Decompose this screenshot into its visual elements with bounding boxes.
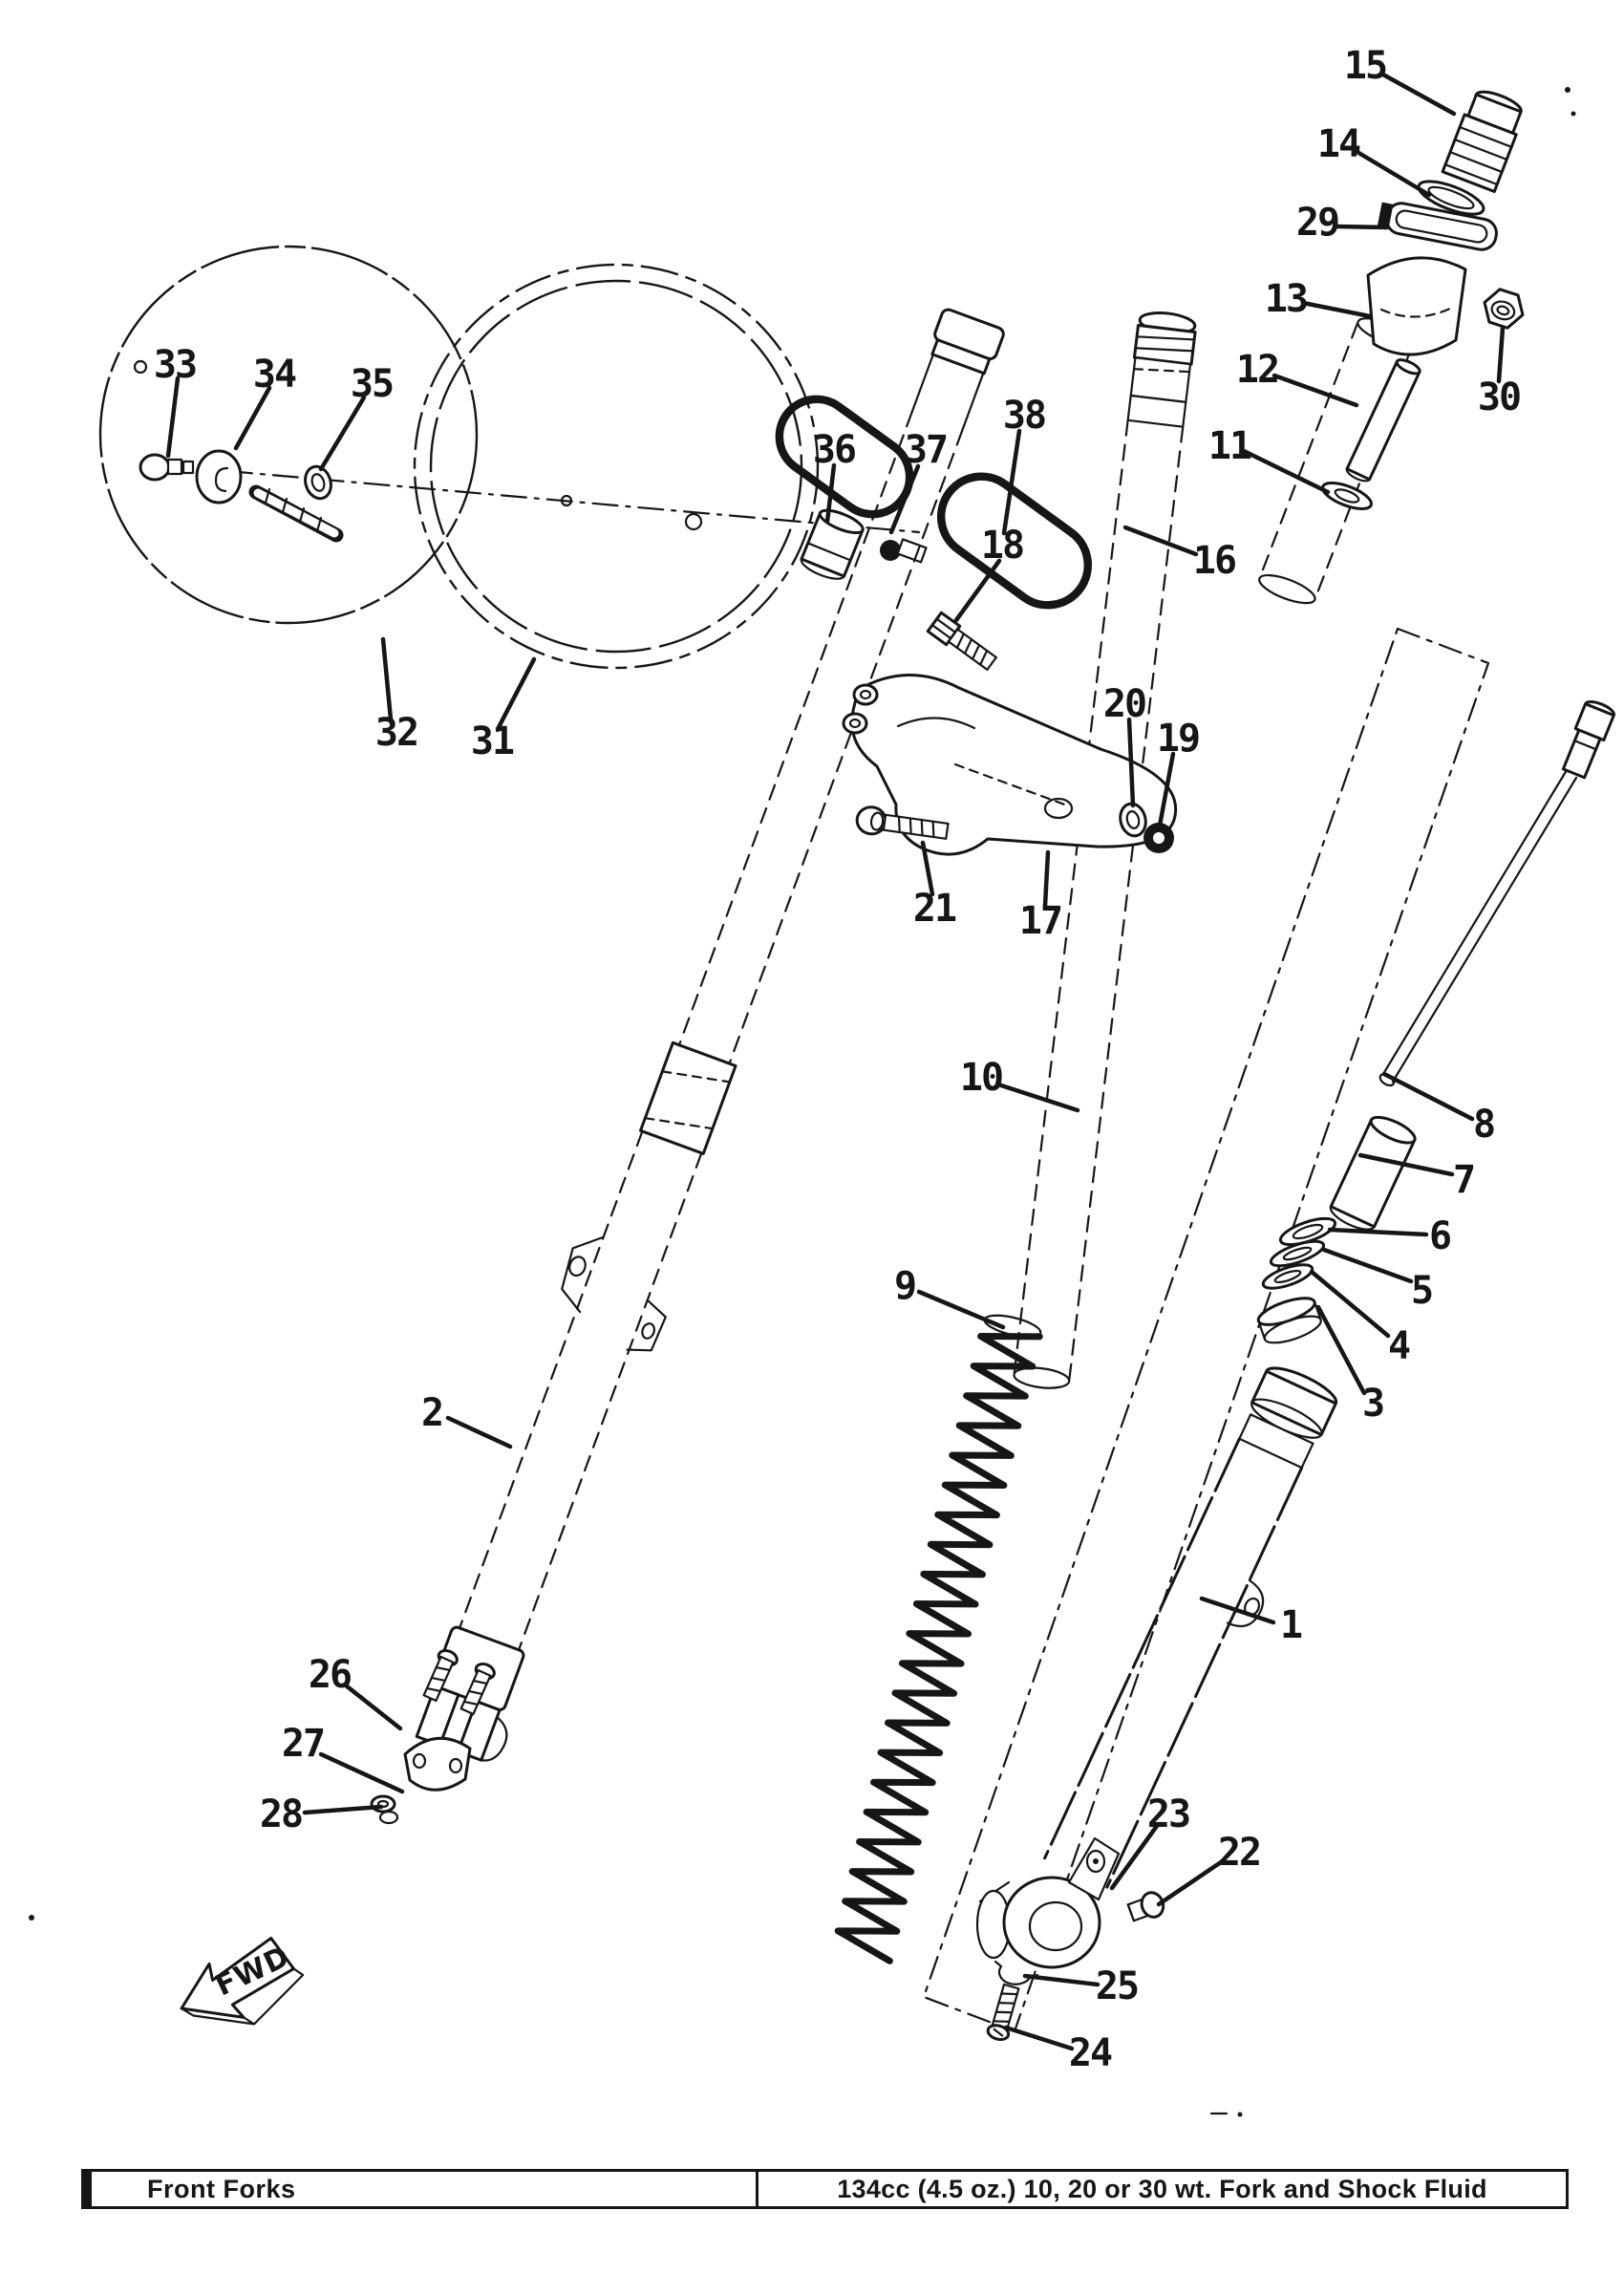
footer-spec-text: 134cc (4.5 oz.) 10, 20 or 30 wt. Fork an…	[837, 2175, 1487, 2204]
callout-21: 21	[913, 887, 956, 931]
callout-18: 18	[981, 524, 1023, 568]
leader-line-35	[321, 397, 364, 469]
oil-seal-part3	[1255, 1293, 1324, 1348]
pinch-bolt-part22	[1126, 1890, 1166, 1924]
callout-12: 12	[1236, 348, 1278, 392]
callout-20: 20	[1103, 682, 1145, 726]
callout-3: 3	[1362, 1382, 1383, 1426]
callout-22: 22	[1218, 1831, 1260, 1875]
callout-19: 19	[1157, 717, 1199, 761]
callout-layer: 1234567891011121314151617181920212223242…	[154, 44, 1520, 2075]
footer-spec: 134cc (4.5 oz.) 10, 20 or 30 wt. Fork an…	[756, 2172, 1566, 2206]
callout-37: 37	[905, 428, 947, 472]
catalog-page: FWD 123456789101112131415161718192021222…	[0, 0, 1624, 2275]
leader-line-33	[168, 378, 178, 456]
footer-table: Front Forks 134cc (4.5 oz.) 10, 20 or 30…	[81, 2169, 1569, 2209]
fork-cap-bolt-part15	[1442, 86, 1528, 191]
spacer-tube-part12	[1345, 357, 1421, 483]
footer-title: Front Forks	[92, 2172, 756, 2206]
callout-28: 28	[260, 1792, 302, 1836]
leader-line-27	[321, 1754, 402, 1792]
callout-9: 9	[894, 1264, 915, 1308]
fork-spring-part9	[834, 1311, 1042, 1961]
callout-4: 4	[1388, 1324, 1410, 1368]
front-forks-exploded-diagram: FWD 123456789101112131415161718192021222…	[0, 0, 1624, 2275]
damper-rod-top-part8	[1560, 698, 1616, 779]
callout-15: 15	[1344, 44, 1386, 88]
stay-collar-part36	[799, 505, 865, 583]
callout-26: 26	[309, 1653, 351, 1697]
lock-nut-part30	[1479, 286, 1528, 331]
leader-line-9	[919, 1292, 1003, 1327]
washer-part11	[1319, 478, 1375, 514]
callout-6: 6	[1429, 1214, 1450, 1258]
callout-7: 7	[1453, 1158, 1474, 1202]
callout-24: 24	[1069, 2031, 1112, 2075]
leader-line-6	[1330, 1230, 1426, 1234]
leader-line-13	[1303, 303, 1370, 316]
callout-30: 30	[1478, 376, 1520, 419]
adjuster-screw-part33	[140, 455, 193, 480]
leader-line-16	[1125, 527, 1196, 554]
callout-2: 2	[421, 1391, 442, 1435]
callout-31: 31	[471, 719, 514, 763]
callout-8: 8	[1473, 1103, 1494, 1147]
callout-25: 25	[1096, 1964, 1138, 2008]
leader-line-2	[448, 1418, 510, 1447]
leader-line-18	[956, 561, 999, 620]
callout-34: 34	[253, 353, 296, 397]
leader-line-30	[1499, 328, 1503, 381]
adjuster-disc-part34	[197, 451, 241, 503]
callout-11: 11	[1208, 424, 1251, 468]
callout-5: 5	[1411, 1269, 1432, 1313]
rebound-spring-seat-part7	[1327, 1112, 1418, 1234]
callout-1: 1	[1280, 1603, 1302, 1647]
leader-line-26	[346, 1685, 400, 1728]
leader-line-24	[1006, 2028, 1072, 2049]
callout-10: 10	[960, 1056, 1002, 1100]
leader-line-10	[998, 1084, 1078, 1110]
callout-35: 35	[351, 362, 393, 406]
stay-bolt-shaft	[898, 539, 927, 562]
callout-36: 36	[813, 428, 855, 472]
callout-23: 23	[1147, 1792, 1189, 1836]
washer-nut-part28	[372, 1796, 397, 1823]
dust-boot-part13	[1368, 258, 1465, 354]
leader-line-11	[1244, 451, 1328, 492]
callout-38: 38	[1003, 394, 1045, 438]
leader-line-8	[1384, 1074, 1472, 1119]
leader-line-15	[1381, 74, 1454, 114]
leader-line-22	[1159, 1860, 1224, 1904]
callout-16: 16	[1193, 539, 1235, 583]
leader-line-17	[1045, 852, 1048, 906]
leader-line-34	[236, 388, 269, 448]
callout-14: 14	[1317, 122, 1360, 166]
callout-29: 29	[1296, 201, 1338, 245]
cotter-pin-part35	[256, 463, 336, 535]
callout-32: 32	[375, 711, 417, 755]
fwd-arrow: FWD	[169, 1930, 312, 2050]
callout-27: 27	[282, 1722, 324, 1766]
axle-housing	[977, 1838, 1119, 1967]
pinch-bolt-part18	[928, 612, 998, 673]
damper-rod	[1378, 770, 1576, 1087]
callout-33: 33	[154, 343, 196, 387]
inner-fork-tube-part16	[1012, 311, 1197, 1391]
leader-line-37	[891, 466, 918, 532]
leader-line-4	[1312, 1272, 1388, 1336]
damper-tube-top	[1256, 312, 1417, 609]
callout-17: 17	[1019, 899, 1061, 943]
axle-clamp-half-part27	[405, 1738, 470, 1790]
leader-line-32	[383, 639, 391, 719]
leader-line-29	[1336, 226, 1387, 227]
leader-line-28	[305, 1807, 381, 1813]
stay-bolt-head	[880, 540, 901, 561]
leader-line-12	[1274, 376, 1357, 405]
leader-line-3	[1318, 1307, 1364, 1393]
leader-line-25	[1025, 1976, 1098, 1985]
leader-line-5	[1324, 1250, 1411, 1281]
callout-13: 13	[1265, 277, 1307, 321]
leader-line-14	[1356, 151, 1429, 195]
footer-title-text: Front Forks	[147, 2175, 296, 2204]
